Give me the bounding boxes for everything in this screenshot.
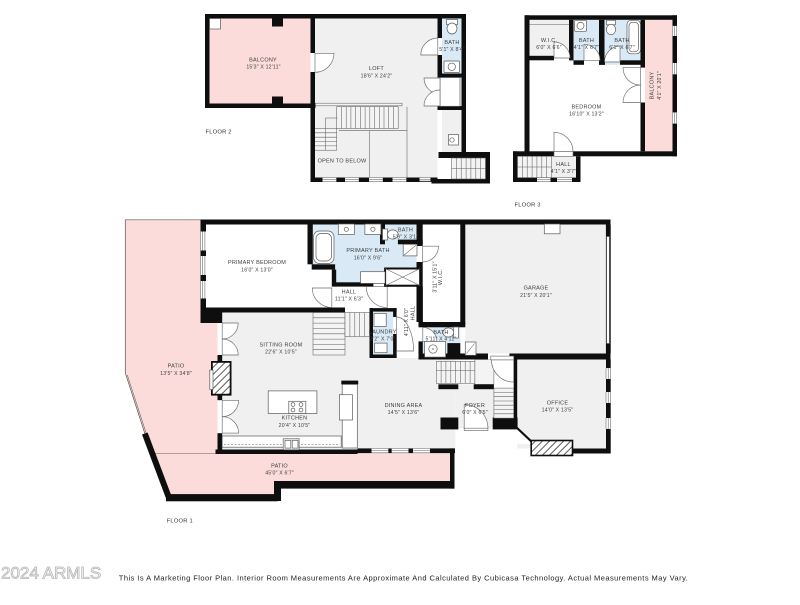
svg-text:GARAGE: GARAGE: [524, 286, 549, 292]
svg-text:BATH: BATH: [579, 38, 594, 44]
svg-text:BATH: BATH: [614, 38, 629, 44]
svg-text:PATIO: PATIO: [271, 464, 288, 470]
svg-text:2'2" X 7'0": 2'2" X 7'0": [370, 337, 396, 343]
svg-text:45'0" X 6'7": 45'0" X 6'7": [265, 471, 294, 477]
svg-text:W.I.C.: W.I.C.: [438, 269, 444, 286]
svg-text:W.I.C.: W.I.C.: [541, 38, 558, 44]
svg-text:3'11" X 15'1": 3'11" X 15'1": [433, 261, 439, 292]
svg-text:FLOOR 1: FLOOR 1: [167, 519, 193, 525]
svg-text:HALL: HALL: [342, 290, 357, 296]
svg-text:21'5" X 20'1": 21'5" X 20'1": [520, 293, 552, 299]
svg-text:LAUNDRY: LAUNDRY: [369, 330, 397, 336]
svg-text:4'1" X 6'7": 4'1" X 6'7": [574, 45, 600, 51]
svg-text:PRIMARY BEDROOM: PRIMARY BEDROOM: [228, 260, 286, 266]
svg-text:KITCHEN: KITCHEN: [282, 416, 308, 422]
svg-text:FLOOR 3: FLOOR 3: [515, 203, 541, 209]
svg-text:BATH: BATH: [433, 330, 448, 336]
svg-text:15'3" X 12'11": 15'3" X 12'11": [246, 65, 280, 71]
svg-text:BALCONY: BALCONY: [249, 58, 277, 64]
svg-text:OFFICE: OFFICE: [547, 401, 569, 407]
svg-text:2024 ARMLS: 2024 ARMLS: [1, 564, 101, 583]
svg-text:SITTING ROOM: SITTING ROOM: [260, 343, 303, 349]
svg-text:OPEN TO BELOW: OPEN TO BELOW: [318, 159, 367, 165]
svg-text:BATH: BATH: [398, 228, 413, 234]
svg-text:4'1" X 3'7": 4'1" X 3'7": [551, 169, 577, 175]
svg-text:This Is A Marketing Floor Plan: This Is A Marketing Floor Plan. Interior…: [119, 574, 688, 583]
svg-text:18'6" X 24'2": 18'6" X 24'2": [361, 74, 393, 80]
svg-text:5'9" X 3'1": 5'9" X 3'1": [393, 235, 419, 241]
svg-text:6'0" X 6'6": 6'0" X 6'6": [536, 45, 562, 51]
svg-text:DINING AREA: DINING AREA: [385, 403, 423, 409]
svg-text:14'0" X 13'5": 14'0" X 13'5": [542, 408, 574, 414]
svg-text:4'1" X 20'1": 4'1" X 20'1": [657, 71, 663, 100]
svg-text:LOFT: LOFT: [369, 66, 384, 72]
svg-text:BALCONY: BALCONY: [650, 71, 656, 99]
svg-text:16'0" X 9'6": 16'0" X 9'6": [354, 256, 383, 262]
svg-text:16'0" X 13'0": 16'0" X 13'0": [241, 268, 273, 274]
svg-text:14'5" X 13'6": 14'5" X 13'6": [388, 410, 420, 416]
svg-text:6'1" X 6'7": 6'1" X 6'7": [609, 45, 635, 51]
svg-text:16'10" X 13'2": 16'10" X 13'2": [569, 112, 604, 118]
svg-text:5'1" X 8'4": 5'1" X 8'4": [439, 47, 465, 53]
svg-text:PRIMARY BATH: PRIMARY BATH: [346, 248, 389, 254]
svg-text:6'0" X 6'5": 6'0" X 6'5": [462, 410, 488, 416]
svg-text:5'11" X 4'11": 5'11" X 4'11": [426, 337, 457, 343]
svg-text:4'11" X 6'0": 4'11" X 6'0": [404, 308, 410, 336]
svg-text:11'1" X 6'3": 11'1" X 6'3": [335, 297, 363, 303]
svg-text:PATIO: PATIO: [168, 364, 185, 370]
svg-text:20'4" X 10'5": 20'4" X 10'5": [279, 423, 311, 429]
svg-text:BATH: BATH: [444, 40, 459, 46]
svg-text:13'5" X 34'8": 13'5" X 34'8": [160, 371, 192, 377]
svg-text:FOYER: FOYER: [465, 403, 485, 409]
svg-text:HALL: HALL: [556, 162, 571, 168]
svg-text:BEDROOM: BEDROOM: [572, 105, 602, 111]
svg-text:HALL: HALL: [411, 306, 417, 321]
svg-text:22'6" X 10'5": 22'6" X 10'5": [265, 350, 297, 356]
svg-text:FLOOR 2: FLOOR 2: [206, 130, 232, 136]
